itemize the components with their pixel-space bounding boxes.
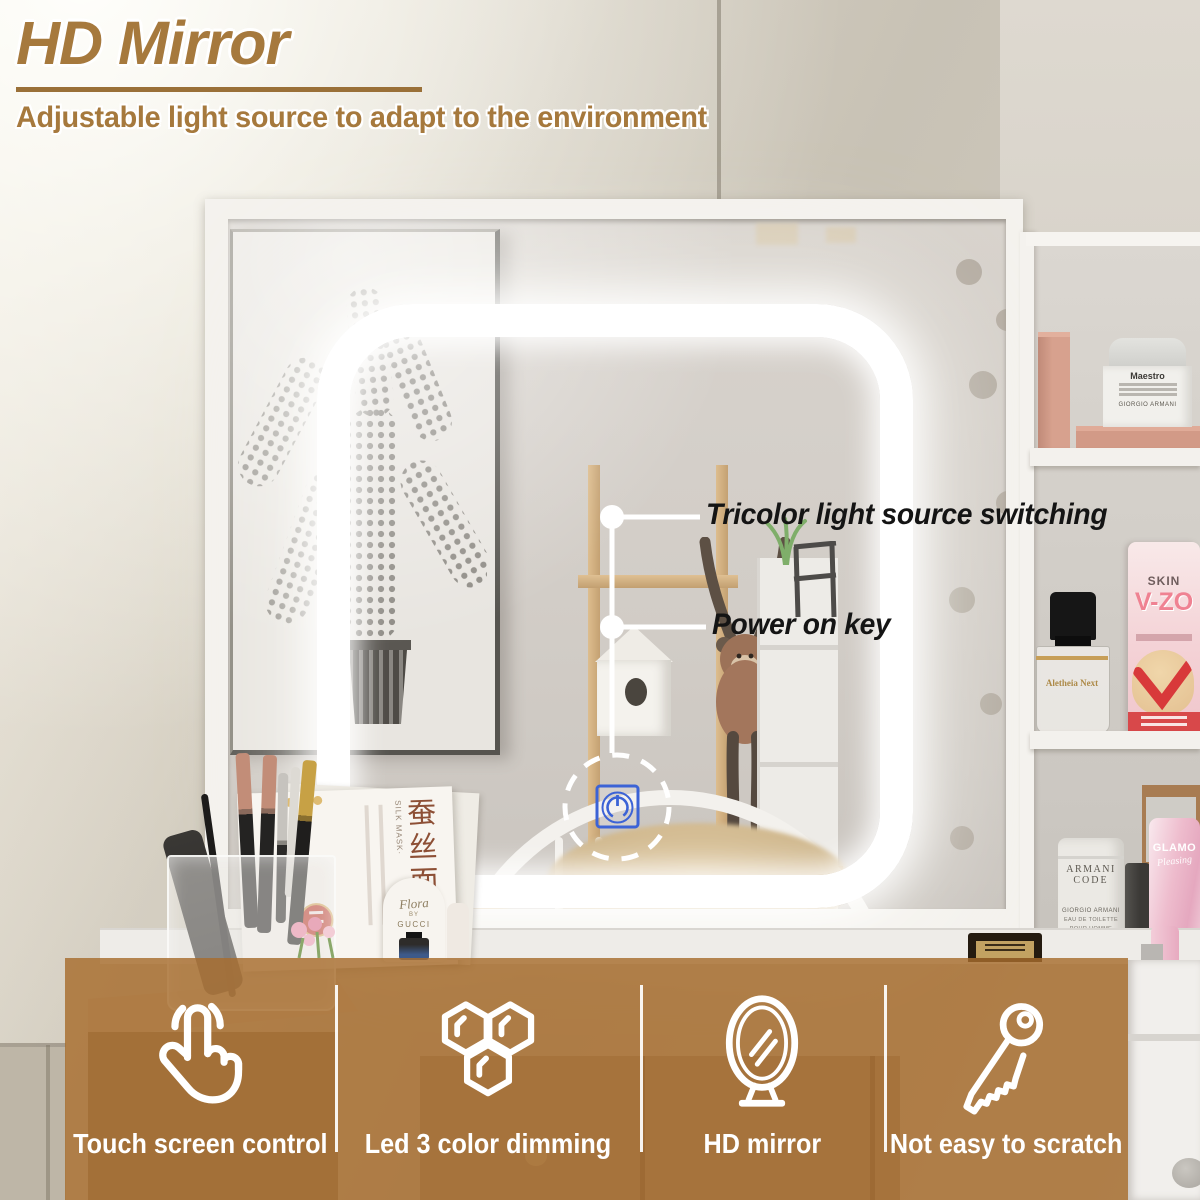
feature-label: Touch screen control xyxy=(73,1128,327,1160)
power-key-icon xyxy=(597,786,638,827)
bar-divider xyxy=(335,985,338,1152)
power-dot xyxy=(600,615,624,639)
product-ad-scene: HD Mirror Adjustable light source to ada… xyxy=(0,0,1200,1200)
feature-scratch: Not easy to scratch xyxy=(884,958,1128,1200)
feature-dimming: Led 3 color dimming xyxy=(335,958,640,1200)
touch-icon xyxy=(135,992,265,1122)
feature-grid: Touch screen control Led 3 color dimming xyxy=(65,958,1128,1200)
feature-touch: Touch screen control xyxy=(65,958,335,1200)
tricolor-callout-label: Tricolor light source switching xyxy=(706,498,1107,532)
tricolor-dot xyxy=(600,505,624,529)
feature-hd-mirror: HD mirror xyxy=(640,958,884,1200)
mirror-icon xyxy=(697,992,827,1122)
feature-label: Led 3 color dimming xyxy=(364,1128,610,1160)
bar-divider xyxy=(640,985,643,1152)
feature-bar: Touch screen control Led 3 color dimming xyxy=(65,958,1128,1200)
power-callout-label: Power on key xyxy=(712,608,890,642)
feature-label: Not easy to scratch xyxy=(890,1128,1122,1160)
key-icon xyxy=(941,992,1071,1122)
feature-label: HD mirror xyxy=(703,1128,821,1160)
hexagons-icon xyxy=(423,992,553,1122)
bar-divider xyxy=(884,985,887,1152)
